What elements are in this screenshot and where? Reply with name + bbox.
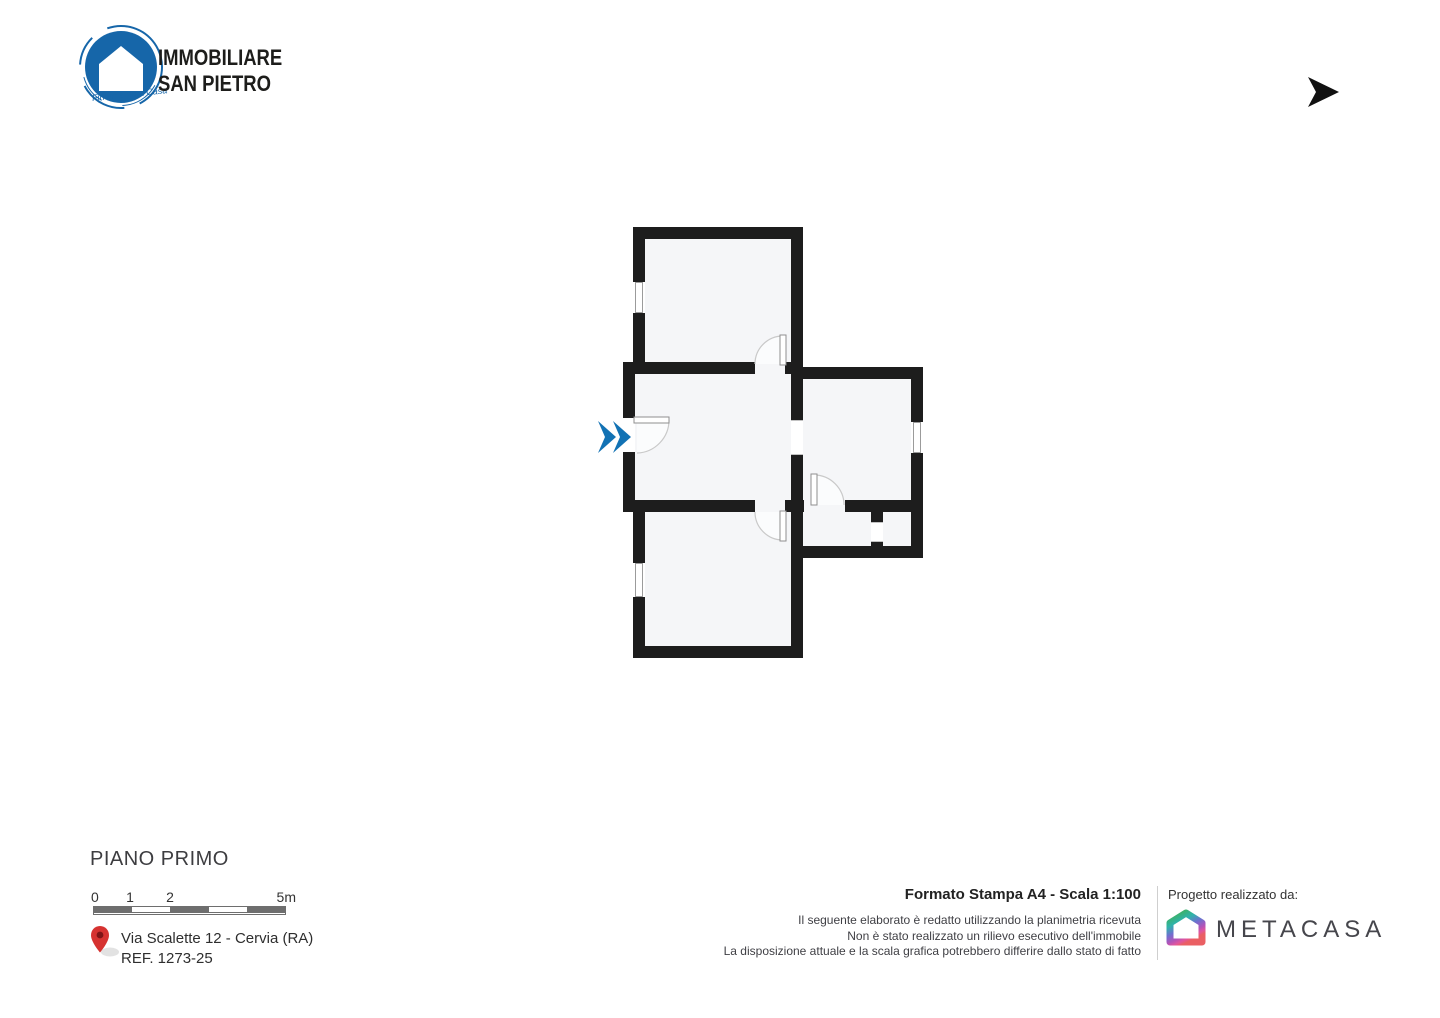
disclaimer-line-2: Non è stato realizzato un rilievo esecut… — [621, 929, 1141, 945]
address-line2: REF. 1273-25 — [121, 949, 313, 969]
address: Via Scalette 12 - Cervia (RA) REF. 1273-… — [121, 929, 313, 968]
room-small-right — [883, 512, 911, 546]
scale-bar-labels: 0 1 2 5m — [90, 889, 290, 905]
floor-title: PIANO PRIMO — [90, 848, 229, 871]
disclaimer-line-1: Il seguente elaborato è redatto utilizza… — [621, 913, 1141, 929]
window-bottom-room — [633, 563, 645, 597]
window-right-room — [911, 422, 923, 453]
passage-opening — [791, 420, 803, 455]
footer-divider — [1157, 886, 1158, 960]
scale-label-0: 0 — [91, 889, 99, 905]
scale-label-1: 1 — [126, 889, 134, 905]
scale-bar: 0 1 2 5m — [90, 889, 290, 917]
credit-label: Progetto realizzato da: — [1168, 887, 1298, 902]
small-rooms-opening — [871, 522, 883, 542]
print-info: Formato Stampa A4 - Scala 1:100 Il segue… — [621, 886, 1141, 960]
window-top-room — [633, 282, 645, 313]
scale-label-2: 2 — [166, 889, 174, 905]
disclaimer-line-3: La disposizione attuale e la scala grafi… — [621, 944, 1141, 960]
scale-bar-graphic — [93, 906, 286, 915]
room-small-left — [803, 512, 871, 546]
address-line1: Via Scalette 12 - Cervia (RA) — [121, 929, 313, 949]
floorplan-rooms — [635, 239, 911, 646]
metacasa-brand-text: METACASA — [1216, 916, 1386, 944]
metacasa-house-icon — [1166, 909, 1206, 947]
print-format-title: Formato Stampa A4 - Scala 1:100 — [621, 886, 1141, 903]
page-root: Finalmente a Casa IMMOBILIARE SAN PIETRO… — [0, 0, 1440, 1018]
metacasa-logo: METACASA — [1166, 909, 1386, 947]
scale-label-5m: 5m — [277, 889, 296, 905]
